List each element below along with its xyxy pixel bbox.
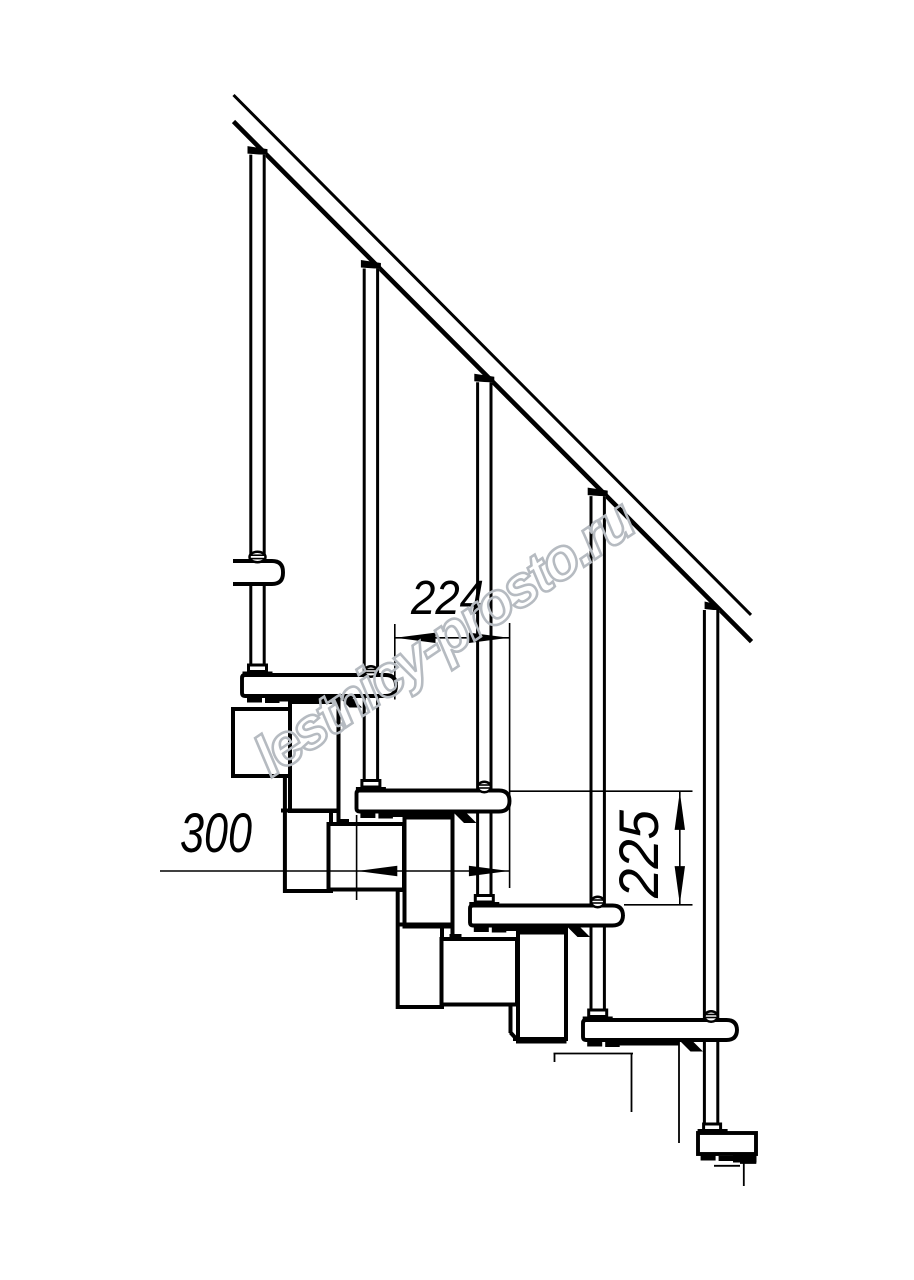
svg-text:300: 300 [180,801,252,864]
svg-text:225: 225 [607,809,670,899]
